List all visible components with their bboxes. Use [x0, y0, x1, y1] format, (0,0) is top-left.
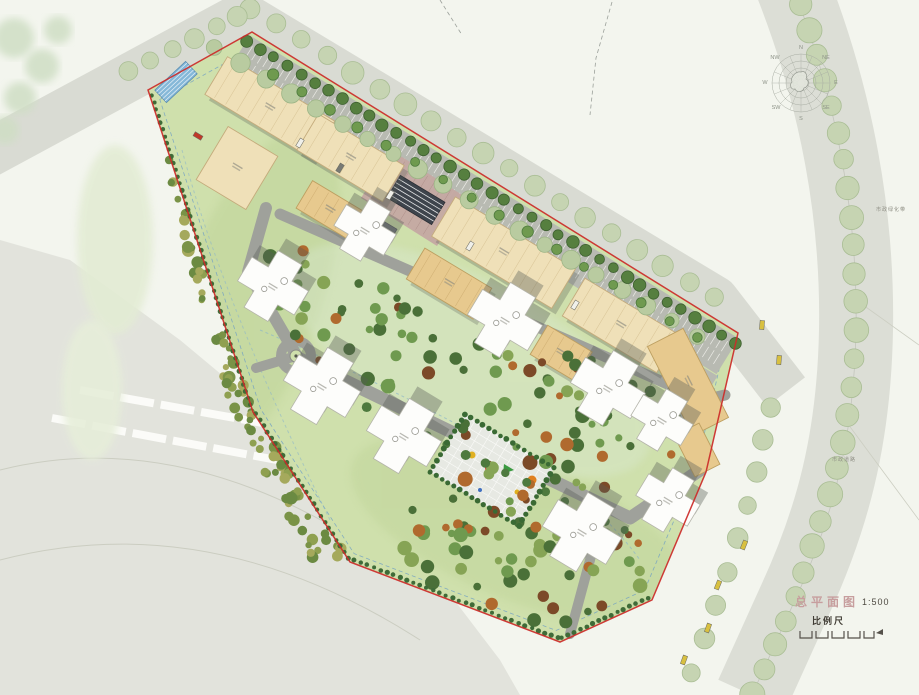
tree-icon: [429, 334, 438, 343]
tree-icon: [325, 105, 336, 116]
tree-icon: [486, 426, 491, 431]
tree-icon: [490, 611, 494, 615]
tree-icon: [676, 304, 687, 315]
tree-icon: [434, 473, 439, 478]
tree-icon: [464, 491, 469, 496]
tree-icon: [543, 376, 554, 387]
tree-icon: [560, 438, 573, 451]
tree-icon: [516, 523, 522, 529]
tree-icon: [810, 511, 832, 533]
compass-direction-label: SE: [822, 105, 830, 111]
tree-icon: [836, 404, 859, 427]
tree-mass: [25, 49, 59, 83]
tree-icon: [412, 306, 422, 316]
tree-icon: [516, 444, 521, 449]
tree-icon: [258, 436, 264, 442]
tree-icon: [431, 464, 436, 469]
tree-icon: [442, 524, 450, 532]
tree-icon: [553, 230, 563, 240]
tree-icon: [602, 224, 620, 242]
tree-icon: [541, 483, 546, 488]
tree-icon: [385, 570, 390, 575]
tree-icon: [268, 52, 278, 62]
tree-icon: [459, 545, 473, 559]
tree-icon: [470, 602, 475, 607]
tree-icon: [256, 445, 264, 453]
tree-icon: [365, 562, 370, 567]
tree-icon: [481, 458, 490, 467]
tree-icon: [439, 175, 448, 184]
tree-icon: [284, 512, 293, 521]
site-plan: NNEESESSWWNW 总平面图 1:500 比例尺 市政绿化带 市政道路: [0, 0, 919, 695]
tree-icon: [199, 295, 206, 302]
tree-icon: [523, 364, 536, 377]
tree-icon: [831, 430, 856, 455]
compass-direction-label: W: [762, 80, 768, 86]
tree-icon: [448, 530, 455, 537]
tree-icon: [506, 497, 514, 505]
tree-icon: [364, 110, 375, 121]
tree-icon: [527, 212, 537, 222]
tree-icon: [836, 176, 859, 199]
tree-icon: [636, 298, 646, 308]
tree-icon: [544, 477, 550, 483]
tree-icon: [370, 79, 390, 99]
tree-icon: [453, 528, 468, 543]
tree-icon: [452, 429, 457, 434]
tree-icon: [372, 565, 376, 569]
tree-icon: [506, 553, 517, 564]
greenbelt-annotation: 市政绿化带: [876, 206, 906, 213]
tree-icon: [227, 355, 233, 361]
tree-icon: [455, 563, 467, 575]
tree-icon: [541, 220, 552, 231]
tree-icon: [753, 430, 774, 451]
compass-direction-label: NW: [770, 55, 780, 61]
tree-icon: [223, 364, 229, 370]
tree-icon: [421, 560, 434, 573]
tree-icon: [480, 422, 486, 428]
tree-icon: [486, 598, 498, 610]
tree-mass: [0, 18, 34, 58]
tree-icon: [616, 610, 620, 614]
tree-icon: [503, 436, 509, 442]
tree-icon: [530, 626, 534, 630]
tree-icon: [584, 608, 592, 616]
tree-icon: [509, 618, 514, 623]
tree-icon: [484, 469, 495, 480]
tree-icon: [428, 470, 433, 475]
tree-icon: [595, 254, 605, 264]
tree-icon: [350, 102, 362, 114]
compass-direction-label: N: [799, 45, 803, 51]
tree-icon: [323, 84, 335, 96]
tree-icon: [234, 413, 243, 422]
tree-icon: [458, 169, 469, 180]
tree-icon: [549, 633, 554, 638]
tree-icon: [665, 317, 674, 326]
tree-icon: [682, 664, 700, 682]
tree-icon: [381, 379, 396, 394]
tree-icon: [834, 149, 854, 169]
tree-icon: [424, 586, 428, 590]
tree-icon: [475, 498, 481, 504]
tree-icon: [458, 472, 473, 487]
tree-icon: [449, 352, 462, 365]
tree-icon: [370, 303, 381, 314]
tree-icon: [552, 244, 562, 254]
tree-icon: [459, 418, 464, 423]
tree-icon: [564, 570, 574, 580]
site-plan-canvas: NNEESESSWWNW: [0, 0, 919, 695]
tree-icon: [282, 60, 293, 71]
tree-icon: [267, 69, 278, 80]
tree-icon: [621, 607, 626, 612]
tree-icon: [469, 495, 474, 500]
tree-icon: [681, 273, 700, 292]
tree-icon: [224, 392, 231, 399]
tree-icon: [449, 495, 457, 503]
tree-icon: [717, 330, 727, 340]
tree-icon: [193, 274, 202, 283]
tree-icon: [633, 279, 646, 292]
tree-icon: [718, 563, 737, 582]
green-area: [62, 320, 122, 460]
tree-icon: [534, 455, 539, 460]
tree-icon: [523, 512, 528, 517]
tree-icon: [505, 517, 510, 522]
tree-icon: [503, 350, 514, 361]
scale-bar-label: 比例尺: [812, 614, 845, 627]
tree-icon: [844, 349, 864, 369]
tree-icon: [437, 590, 442, 595]
tree-icon: [531, 500, 537, 506]
tree-icon: [501, 565, 513, 577]
tree-icon: [818, 482, 843, 507]
tree-icon: [624, 556, 635, 567]
tree-icon: [457, 599, 461, 603]
tree-icon: [793, 562, 814, 583]
tree-icon: [411, 157, 420, 166]
tree-icon: [457, 487, 463, 493]
tree-icon: [841, 377, 862, 398]
tree-icon: [180, 230, 190, 240]
tree-icon: [547, 602, 559, 614]
tree-icon: [453, 519, 463, 529]
tree-icon: [472, 142, 494, 164]
tree-icon: [295, 312, 308, 325]
tree-icon: [406, 136, 416, 146]
tree-icon: [341, 62, 364, 85]
tree-icon: [567, 236, 580, 249]
tree-icon: [468, 415, 474, 421]
tree-icon: [844, 318, 869, 343]
tree-icon: [635, 566, 645, 576]
tree-icon: [310, 78, 321, 89]
tree-icon: [627, 604, 632, 609]
tree-icon: [597, 451, 608, 462]
tree-icon: [537, 237, 552, 252]
tree-icon: [487, 505, 492, 510]
tree-icon: [689, 312, 702, 325]
tree-icon: [615, 434, 622, 441]
tree-icon: [693, 333, 703, 343]
tree-icon: [464, 600, 469, 605]
tree-icon: [602, 615, 607, 620]
tree-icon: [580, 262, 589, 271]
tree-icon: [462, 412, 468, 418]
tree-icon: [538, 358, 546, 366]
tree-icon: [652, 255, 673, 276]
tree-icon: [247, 417, 254, 424]
tree-icon: [495, 557, 502, 564]
tree-icon: [626, 442, 634, 450]
tree-icon: [297, 87, 307, 97]
tree-icon: [498, 397, 512, 411]
tree-icon: [448, 435, 453, 440]
tree-icon: [541, 431, 553, 443]
tree-icon: [321, 529, 330, 538]
tree-icon: [483, 608, 487, 612]
tree-icon: [551, 465, 556, 470]
tree-icon: [391, 572, 396, 577]
tree-icon: [519, 517, 525, 523]
tree-icon: [222, 378, 232, 388]
tree-icon: [481, 527, 490, 536]
tree-icon: [455, 423, 461, 429]
tree-icon: [498, 434, 503, 439]
tree-icon: [646, 596, 651, 601]
tree-icon: [800, 534, 824, 558]
tree-icon: [444, 440, 450, 446]
tree-icon: [231, 53, 250, 72]
tree-icon: [754, 659, 775, 680]
tree-icon: [518, 568, 530, 580]
tree-icon: [267, 14, 286, 33]
tree-icon: [461, 450, 471, 460]
tree-icon: [467, 193, 476, 202]
tree-icon: [317, 328, 330, 341]
tree-icon: [540, 458, 546, 464]
tree-icon: [445, 480, 450, 485]
tree-icon: [609, 263, 619, 273]
tree-icon: [444, 160, 457, 173]
tree-icon: [398, 330, 407, 339]
tree-icon: [580, 244, 592, 256]
tree-icon: [366, 326, 374, 334]
tree-icon: [481, 502, 486, 507]
tree-icon: [517, 490, 528, 501]
tree-icon: [164, 41, 181, 58]
car: [776, 355, 781, 364]
drawing-title: 总平面图: [795, 593, 859, 610]
tree-icon: [337, 93, 349, 105]
tree-icon: [842, 234, 864, 256]
tree-icon: [351, 558, 356, 563]
tree-icon: [486, 187, 498, 199]
tree-icon: [534, 387, 545, 398]
tree-icon: [494, 210, 504, 220]
tree-icon: [441, 446, 447, 452]
tree-icon: [359, 560, 363, 564]
tree-icon: [460, 366, 468, 374]
tree-icon: [797, 18, 822, 43]
tree-icon: [261, 468, 270, 477]
tree-icon: [484, 403, 497, 416]
tree-icon: [508, 361, 517, 370]
tree-icon: [404, 578, 409, 583]
tree-icon: [703, 320, 716, 333]
tree-icon: [840, 206, 864, 230]
tree-icon: [250, 440, 257, 447]
tree-icon: [417, 583, 422, 588]
tree-icon: [747, 462, 767, 482]
tree-icon: [397, 541, 411, 555]
tree-icon: [512, 429, 519, 436]
tree-icon: [813, 69, 836, 92]
tree-icon: [451, 484, 456, 489]
tree-icon: [208, 18, 225, 35]
tree-icon: [418, 144, 429, 155]
tree-icon: [423, 350, 437, 364]
tree-icon: [229, 403, 240, 414]
tree-icon: [498, 194, 509, 205]
tree-icon: [588, 267, 604, 283]
compass-direction-label: SW: [772, 105, 782, 111]
tree-icon: [527, 613, 541, 627]
tree-icon: [579, 483, 586, 490]
tree-icon: [527, 506, 532, 511]
tree-icon: [522, 448, 527, 453]
tree-icon: [523, 419, 532, 428]
tree-icon: [292, 31, 310, 49]
tree-icon: [168, 179, 175, 186]
tree-icon: [473, 583, 481, 591]
tree-icon: [307, 549, 315, 557]
tree-icon: [525, 175, 546, 196]
tree-icon: [440, 477, 445, 482]
tree-icon: [561, 460, 575, 474]
compass-direction-label: S: [799, 116, 803, 122]
tree-icon: [305, 513, 312, 520]
tree-icon: [377, 282, 389, 294]
tree-icon: [142, 52, 159, 69]
tree-icon: [362, 402, 372, 412]
tree-icon: [448, 128, 467, 147]
tree-icon: [360, 131, 375, 146]
tree-icon: [305, 542, 311, 548]
tree-icon: [497, 614, 501, 618]
tree-icon: [761, 398, 780, 417]
tree-icon: [492, 429, 497, 434]
tree-icon: [510, 440, 516, 446]
tree-icon: [246, 426, 256, 436]
tree-icon: [513, 204, 523, 214]
tree-icon: [506, 507, 516, 517]
tree-icon: [444, 594, 448, 598]
tree-icon: [438, 452, 443, 457]
tree-icon: [775, 611, 796, 632]
tree-icon: [317, 276, 330, 289]
tree-icon: [511, 519, 517, 525]
tree-icon: [546, 462, 551, 467]
car: [680, 655, 687, 665]
tree-mass: [4, 82, 36, 114]
tree-icon: [596, 601, 607, 612]
tree-icon: [394, 93, 417, 116]
tree-mass: [44, 16, 72, 44]
tree-icon: [185, 29, 205, 49]
tree-icon: [398, 575, 403, 580]
tree-icon: [621, 271, 634, 284]
tree-icon: [290, 330, 301, 341]
tree-icon: [569, 427, 581, 439]
tree-icon: [494, 531, 504, 541]
tree-icon: [376, 119, 388, 131]
tree-icon: [764, 633, 787, 656]
tree-icon: [422, 366, 435, 379]
tree-icon: [705, 288, 723, 306]
compass-direction-label: E: [834, 80, 838, 86]
tree-icon: [376, 313, 388, 325]
tree-icon: [595, 439, 604, 448]
tree-icon: [596, 618, 601, 623]
tree-icon: [827, 122, 849, 144]
tree-icon: [235, 390, 243, 398]
tree-icon: [434, 458, 440, 464]
tree-icon: [609, 280, 618, 289]
tree-icon: [633, 578, 648, 593]
tree-icon: [195, 267, 203, 275]
tree-icon: [354, 279, 363, 288]
tree-icon: [706, 595, 726, 615]
tree-icon: [547, 471, 553, 477]
tree-icon: [298, 526, 308, 536]
car: [759, 320, 764, 329]
tree-icon: [227, 6, 247, 26]
tree-icon: [589, 421, 596, 428]
tree-icon: [450, 595, 455, 600]
green-area: [77, 145, 153, 335]
tree-icon: [574, 390, 584, 400]
tree-icon: [175, 196, 182, 203]
tree-icon: [667, 450, 675, 458]
compass-direction-label: NE: [822, 55, 830, 61]
tree-icon: [493, 509, 498, 514]
tree-icon: [421, 111, 441, 131]
tree-icon: [562, 250, 581, 269]
tree-icon: [556, 392, 563, 399]
tree-icon: [280, 473, 291, 484]
tree-icon: [272, 469, 279, 476]
tree-icon: [379, 568, 384, 573]
tree-icon: [522, 226, 533, 237]
tree-icon: [578, 627, 583, 632]
tree-icon: [573, 479, 581, 487]
tree-icon: [534, 494, 539, 499]
tree-icon: [633, 601, 638, 606]
tree-icon: [411, 581, 415, 585]
tree-icon: [413, 524, 425, 536]
tree-icon: [296, 69, 307, 80]
tree-icon: [490, 366, 502, 378]
tree-icon: [319, 46, 337, 64]
road-annotation: 市政道路: [832, 456, 856, 463]
tree-icon: [590, 621, 595, 626]
tree-icon: [471, 178, 483, 190]
tree-icon: [269, 451, 279, 461]
tree-icon: [119, 62, 138, 81]
